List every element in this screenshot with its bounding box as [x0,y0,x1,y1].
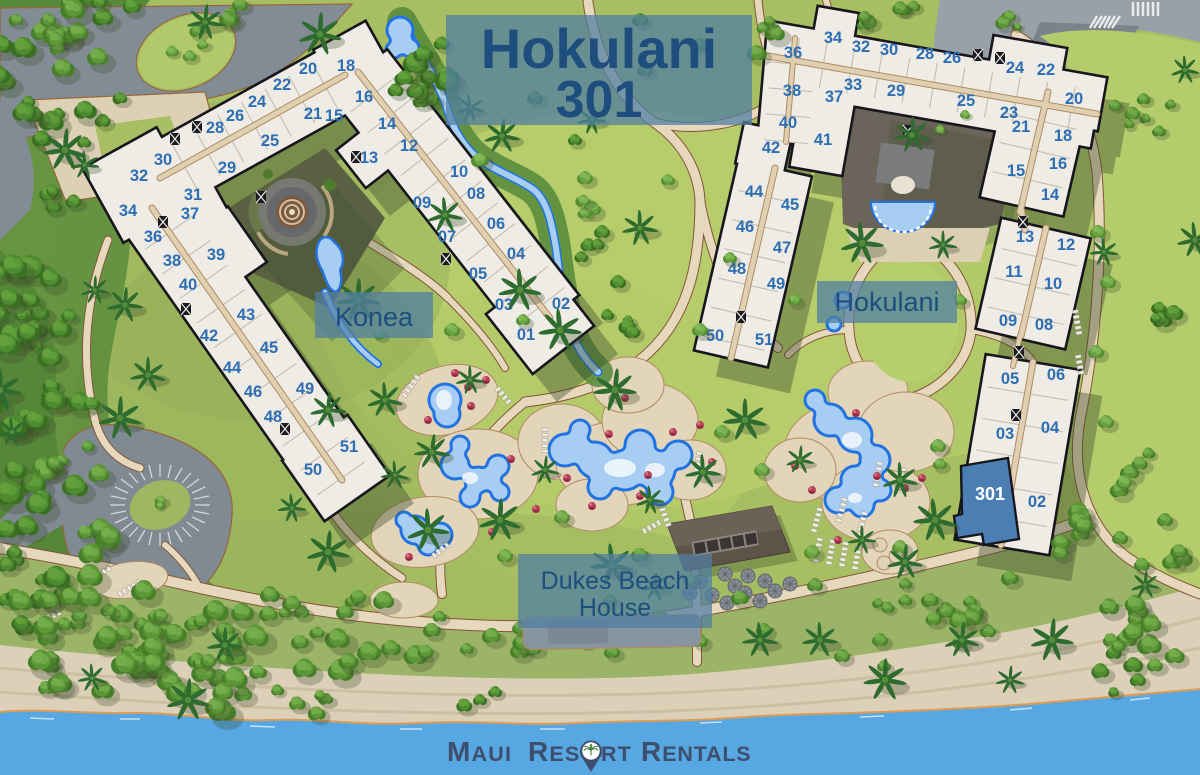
svg-text:51: 51 [340,438,358,456]
svg-text:26: 26 [226,107,244,125]
svg-text:RT: RT [601,742,632,766]
svg-text:301: 301 [975,484,1005,504]
svg-text:15: 15 [325,107,343,125]
svg-text:49: 49 [767,275,785,293]
svg-text:301: 301 [556,71,643,129]
svg-text:14: 14 [378,115,397,133]
svg-text:05: 05 [1001,370,1019,388]
svg-text:38: 38 [163,252,181,270]
svg-text:39: 39 [207,246,225,264]
svg-text:06: 06 [1047,366,1065,384]
svg-text:46: 46 [736,218,754,236]
svg-text:40: 40 [779,114,797,132]
svg-text:37: 37 [825,88,843,106]
svg-text:House: House [579,594,651,622]
svg-text:47: 47 [773,239,791,257]
svg-text:40: 40 [179,276,197,294]
svg-text:11: 11 [1005,263,1022,281]
svg-text:28: 28 [916,45,934,63]
svg-text:29: 29 [887,82,905,100]
svg-text:13: 13 [1016,228,1034,246]
svg-text:29: 29 [218,159,236,177]
svg-text:24: 24 [248,93,267,111]
svg-text:Hokulani: Hokulani [834,287,939,317]
svg-text:02: 02 [1028,493,1046,511]
svg-text:10: 10 [450,163,468,181]
svg-text:08: 08 [1035,316,1053,334]
svg-text:16: 16 [355,88,373,106]
svg-text:45: 45 [781,196,799,214]
svg-text:18: 18 [1054,127,1072,145]
svg-text:09: 09 [413,194,431,212]
svg-text:22: 22 [273,76,291,94]
svg-text:42: 42 [762,139,780,157]
svg-text:37: 37 [181,205,199,223]
svg-text:49: 49 [296,380,314,398]
svg-text:45: 45 [260,339,278,357]
svg-text:25: 25 [957,92,975,110]
svg-text:44: 44 [223,359,242,377]
svg-text:30: 30 [880,41,898,59]
svg-text:14: 14 [1041,186,1060,204]
svg-text:16: 16 [1049,155,1067,173]
svg-text:10: 10 [1044,275,1062,293]
svg-text:04: 04 [507,245,526,263]
svg-text:08: 08 [467,185,485,203]
svg-text:20: 20 [1065,90,1083,108]
svg-text:26: 26 [943,49,961,67]
svg-text:48: 48 [264,408,282,426]
svg-text:32: 32 [130,167,148,185]
svg-text:32: 32 [852,38,870,56]
svg-text:Dukes Beach: Dukes Beach [541,567,690,595]
svg-text:21: 21 [304,105,322,123]
svg-text:22: 22 [1037,61,1055,79]
svg-text:12: 12 [1057,236,1075,254]
svg-text:31: 31 [184,186,202,204]
svg-text:50: 50 [304,461,322,479]
svg-text:36: 36 [144,228,162,246]
svg-text:25: 25 [261,132,279,150]
svg-text:18: 18 [337,57,355,75]
svg-text:09: 09 [999,312,1017,330]
svg-text:15: 15 [1007,162,1025,180]
svg-text:41: 41 [814,131,832,149]
svg-text:36: 36 [784,44,802,62]
svg-text:21: 21 [1012,118,1030,136]
svg-text:04: 04 [1041,419,1060,437]
svg-text:28: 28 [206,119,224,137]
svg-text:46: 46 [244,383,262,401]
svg-text:34: 34 [824,29,843,47]
svg-text:51: 51 [755,331,773,349]
svg-text:30: 30 [154,151,172,169]
svg-text:42: 42 [200,327,218,345]
svg-text:13: 13 [360,149,378,167]
svg-text:12: 12 [400,137,418,155]
svg-text:Konea: Konea [335,302,414,332]
svg-text:06: 06 [487,215,505,233]
svg-text:44: 44 [745,183,764,201]
svg-text:02: 02 [552,295,570,313]
svg-text:43: 43 [237,306,255,324]
svg-text:03: 03 [996,425,1014,443]
svg-text:34: 34 [119,202,138,220]
svg-text:24: 24 [1006,59,1025,77]
svg-text:33: 33 [844,76,862,94]
svg-text:05: 05 [469,265,487,283]
svg-text:20: 20 [299,60,317,78]
svg-text:38: 38 [783,82,801,100]
